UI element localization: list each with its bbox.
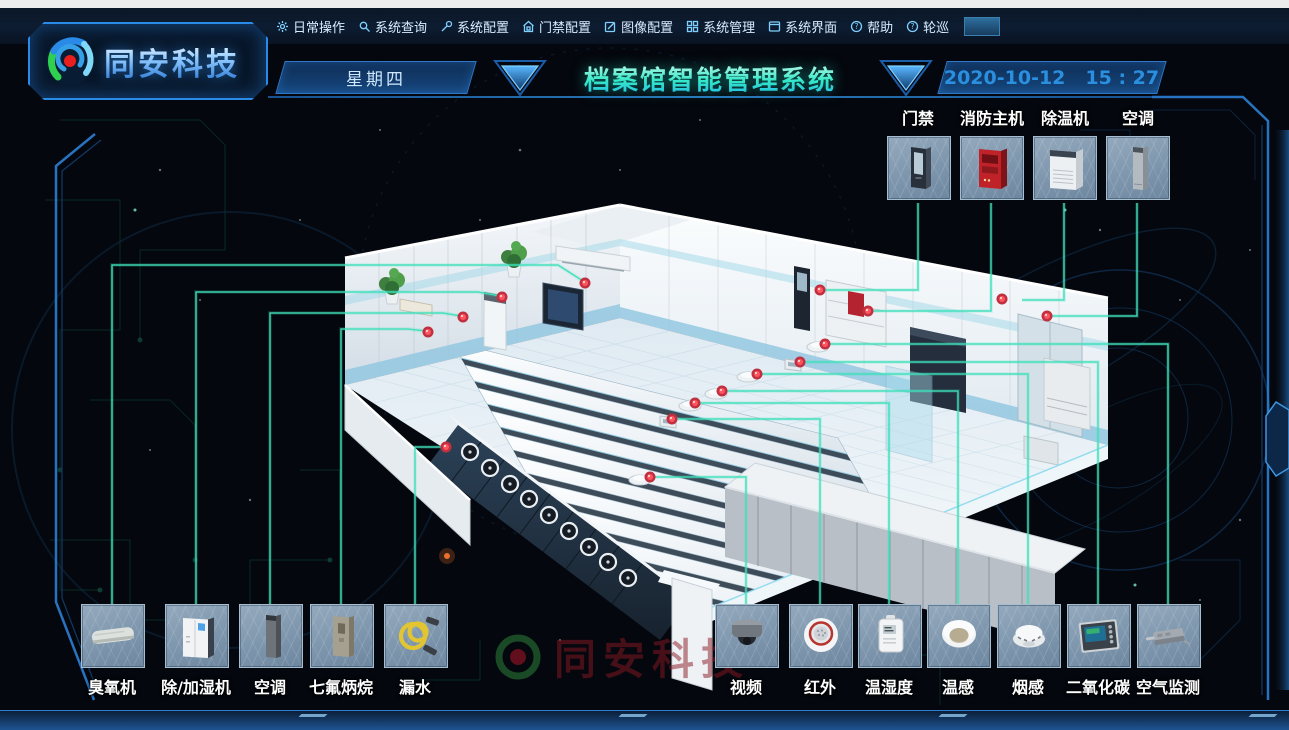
menu-item-system-config[interactable]: 系统配置 <box>440 17 509 36</box>
menu-item-label: 图像配置 <box>621 17 673 36</box>
menu-item-image-config[interactable]: 图像配置 <box>604 17 673 36</box>
device-tile-smoke[interactable] <box>997 604 1061 668</box>
grid-icon <box>686 20 699 33</box>
ac-column-gray-icon <box>1110 140 1166 196</box>
dome-camera-icon <box>719 608 775 664</box>
device-tile-ac-bottom[interactable] <box>239 604 303 668</box>
header-underline <box>268 96 1152 98</box>
ozone-unit-icon <box>85 608 141 664</box>
bottom-frame-band <box>0 710 1289 730</box>
band-slash-mark <box>289 714 328 727</box>
time-text: 15 : 27 <box>1086 67 1160 89</box>
device-tile-video[interactable] <box>715 604 779 668</box>
device-tile-ozone[interactable] <box>81 604 145 668</box>
menu-item-system-management[interactable]: 系统管理 <box>686 17 755 36</box>
nav-triangle-right-button[interactable] <box>878 58 934 98</box>
co2-panel-icon <box>1071 608 1127 664</box>
menu-item-label: 系统管理 <box>703 17 755 36</box>
device-label-air-monitor: 空气监测 <box>1120 674 1216 698</box>
patrol-circle-icon: ? <box>906 20 919 33</box>
menu-item-label: 门禁配置 <box>539 17 591 36</box>
window-top-strip <box>0 0 1289 8</box>
dashboard-root: 同安科技 日常操作 系统查询 系统配置 门禁配置 图像配置 系统管理 <box>0 0 1289 730</box>
menu-item-help[interactable]: ? 帮助 <box>850 17 893 36</box>
weekday-display: 星期四 <box>275 61 476 94</box>
ac-column-dark-icon <box>243 608 299 664</box>
patrol-blank-button[interactable] <box>964 17 1000 36</box>
heat-detector-icon <box>931 608 987 664</box>
band-slash-mark <box>1239 714 1278 727</box>
brand-logo: 同安科技 <box>28 22 268 100</box>
humidifier-cabinet-icon <box>169 608 225 664</box>
smoke-detector-icon <box>1001 608 1057 664</box>
page-title: 档案馆智能管理系统 <box>548 60 872 97</box>
dehumidifier-cabinet-icon <box>1037 140 1093 196</box>
nav-triangle-left-button[interactable] <box>492 58 548 98</box>
menu-item-label: 系统查询 <box>375 17 427 36</box>
menu-item-system-interface[interactable]: 系统界面 <box>768 17 837 36</box>
device-tile-infrared[interactable] <box>789 604 853 668</box>
device-label-ac-top: 空调 <box>1090 105 1186 129</box>
datetime-display: 2020-10-12 15 : 27 <box>937 61 1166 94</box>
device-label-ozone: 臭氧机 <box>64 674 160 698</box>
band-slash-mark <box>609 714 648 727</box>
edit-pencil-icon <box>604 20 617 33</box>
fire-alarm-host-icon <box>964 140 1020 196</box>
device-tile-hfc[interactable] <box>310 604 374 668</box>
menu-item-system-query[interactable]: 系统查询 <box>358 17 427 36</box>
device-tile-fire-host[interactable] <box>960 136 1024 200</box>
device-tile-dehumidifier[interactable] <box>1033 136 1097 200</box>
device-tile-co2[interactable] <box>1067 604 1131 668</box>
date-text: 2020-10-12 <box>944 67 1066 89</box>
device-tile-ac-top[interactable] <box>1106 136 1170 200</box>
air-quality-monitor-icon <box>1141 608 1197 664</box>
svg-text:?: ? <box>855 22 859 31</box>
help-circle-icon: ? <box>850 20 863 33</box>
menu-item-label: 系统配置 <box>457 17 509 36</box>
device-tile-heat[interactable] <box>927 604 991 668</box>
menu-item-daily-operations[interactable]: 日常操作 <box>276 17 345 36</box>
device-tile-temp-humidity[interactable] <box>858 604 922 668</box>
menu-item-access-config[interactable]: 门禁配置 <box>522 17 591 36</box>
temp-humidity-sensor-icon <box>862 608 918 664</box>
band-slash-mark <box>929 714 968 727</box>
device-tile-air-monitor[interactable] <box>1137 604 1201 668</box>
menu-item-label: 帮助 <box>867 17 893 36</box>
weekday-text: 星期四 <box>346 65 406 90</box>
brand-swirl-icon <box>44 35 96 87</box>
device-label-leak: 漏水 <box>367 674 463 698</box>
menu-item-label: 系统界面 <box>785 17 837 36</box>
menu-item-label: 日常操作 <box>293 17 345 36</box>
menu-item-patrol[interactable]: ? 轮巡 <box>906 17 949 36</box>
device-tile-leak[interactable] <box>384 604 448 668</box>
svg-text:?: ? <box>911 22 915 31</box>
brand-logo-text: 同安科技 <box>104 39 240 84</box>
device-tile-access[interactable] <box>887 136 951 200</box>
leak-cable-icon <box>388 608 444 664</box>
access-terminal-icon <box>891 140 947 196</box>
device-tile-humidifier[interactable] <box>165 604 229 668</box>
search-icon <box>358 20 371 33</box>
gear-icon <box>276 20 289 33</box>
infrared-detector-icon <box>793 608 849 664</box>
home-lock-icon <box>522 20 535 33</box>
wrench-icon <box>440 20 453 33</box>
window-icon <box>768 20 781 33</box>
menu-item-label: 轮巡 <box>923 17 949 36</box>
hfc-extinguisher-icon <box>314 608 370 664</box>
